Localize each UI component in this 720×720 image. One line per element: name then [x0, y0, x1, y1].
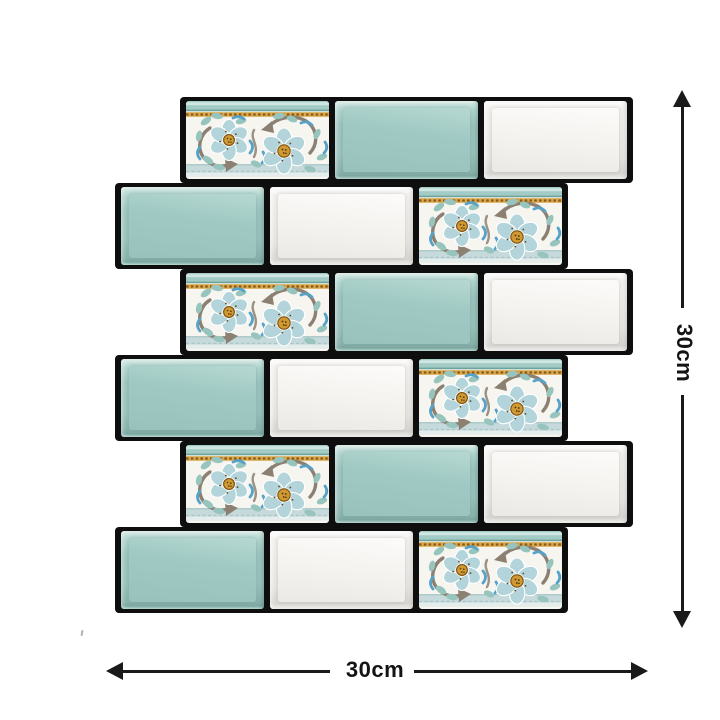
tile-white [270, 187, 413, 265]
tile-floral [186, 273, 329, 351]
tile-floral [186, 445, 329, 523]
arrow-right-icon [631, 662, 648, 680]
white-tile-face [278, 194, 405, 258]
height-arrow-line-lower [681, 395, 684, 612]
tile-white [270, 531, 413, 609]
floral-pattern-art [419, 187, 562, 265]
tile-teal [121, 187, 264, 265]
tile-teal [335, 273, 478, 351]
width-arrow-line-left [122, 670, 330, 673]
floral-pattern-art [419, 359, 562, 437]
teal-tile-face [129, 366, 256, 430]
tile-white [270, 359, 413, 437]
height-arrow-line-upper [681, 105, 684, 308]
white-tile-face [278, 366, 405, 430]
width-dimension-label: 30cm [346, 657, 404, 683]
tile-teal [335, 101, 478, 179]
tile-teal [335, 445, 478, 523]
teal-tile-face [343, 280, 470, 344]
tile-mosaic-panel [0, 0, 720, 720]
tile-white [484, 445, 627, 523]
mosaic-row [180, 269, 633, 355]
teal-tile-face [343, 452, 470, 516]
mosaic-row [180, 97, 633, 183]
mosaic-row [115, 355, 568, 441]
mosaic-row [115, 527, 568, 613]
tile-floral [419, 531, 562, 609]
floral-pattern-art [186, 445, 329, 523]
tile-teal [121, 359, 264, 437]
tile-floral [186, 101, 329, 179]
arrow-left-icon [106, 662, 123, 680]
mosaic-row [180, 441, 633, 527]
tile-white [484, 101, 627, 179]
floral-pattern-art [186, 273, 329, 351]
white-tile-face [492, 280, 619, 344]
white-tile-face [492, 452, 619, 516]
white-tile-face [278, 538, 405, 602]
arrow-down-icon [673, 611, 691, 628]
tile-white [484, 273, 627, 351]
height-dimension-label: 30cm [671, 324, 697, 382]
teal-tile-face [129, 194, 256, 258]
width-arrow-line-right [414, 670, 631, 673]
tile-floral [419, 359, 562, 437]
teal-tile-face [343, 108, 470, 172]
tile-floral [419, 187, 562, 265]
floral-pattern-art [186, 101, 329, 179]
white-tile-face [492, 108, 619, 172]
mosaic-row [115, 183, 568, 269]
product-dimension-diagram: 30cm 30cm [0, 0, 720, 720]
floral-pattern-art [419, 531, 562, 609]
teal-tile-face [129, 538, 256, 602]
tile-teal [121, 531, 264, 609]
